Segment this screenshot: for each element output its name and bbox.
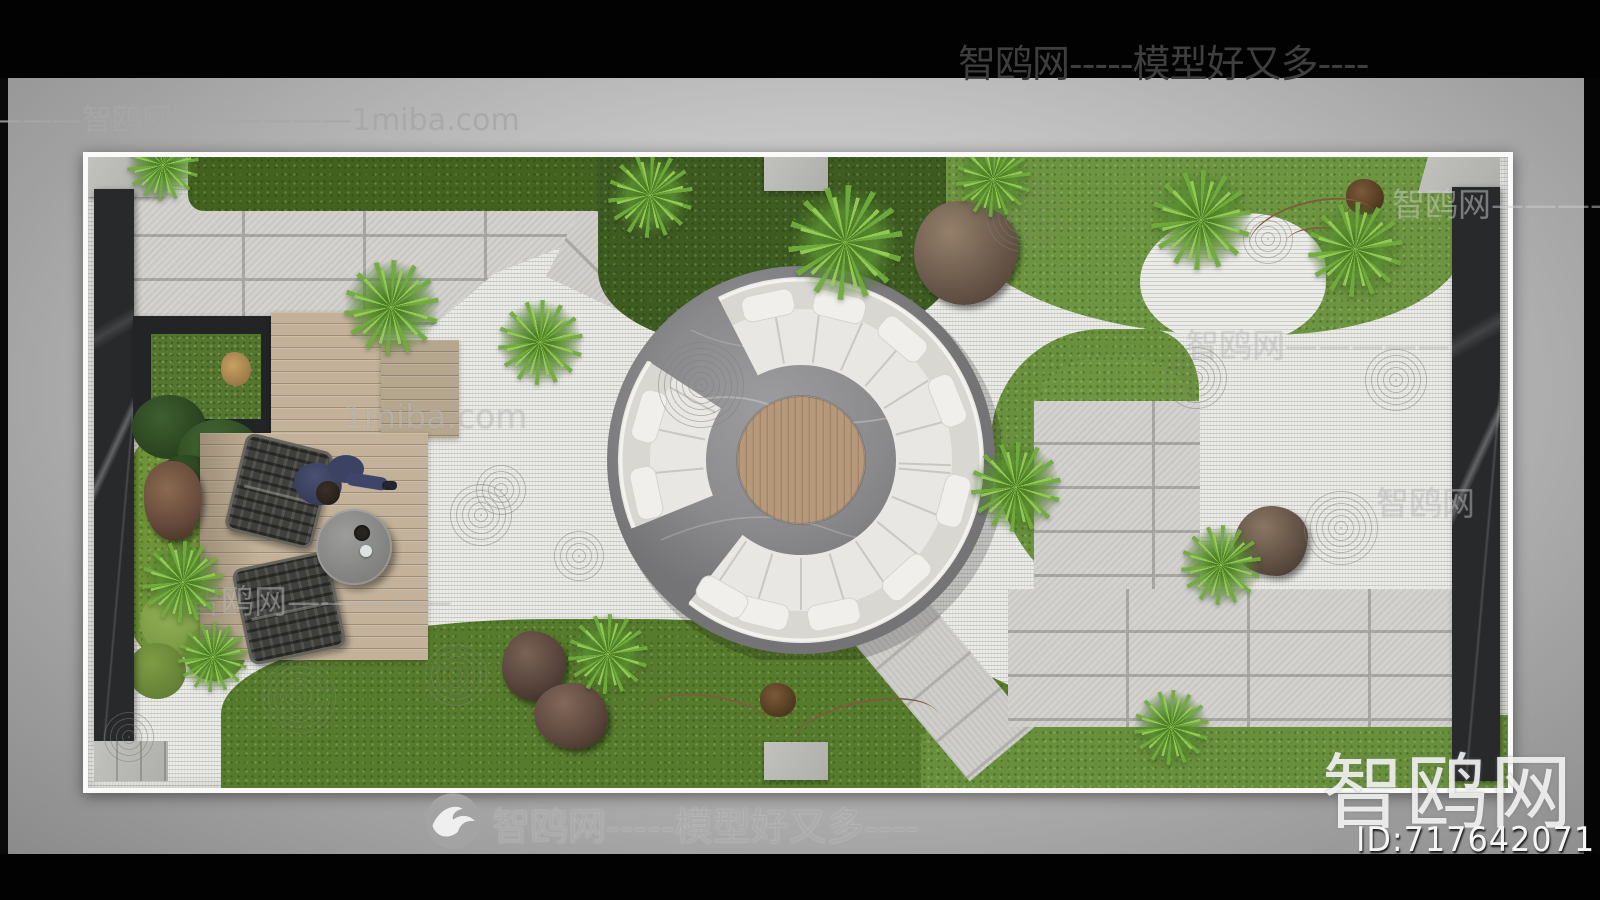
- paver-strip-bottom-right: [1008, 589, 1470, 727]
- cup: [360, 545, 372, 557]
- watermark-tile: 智鸥网: [1376, 477, 1475, 525]
- screenshot-canvas: 智鸥网-----模型好又多---- ————智鸥网——————1miba.com: [0, 0, 1600, 900]
- concrete-pier-top: [764, 157, 828, 191]
- circular-sofa-centerpiece: [601, 260, 1001, 660]
- fern-plant: [142, 541, 224, 623]
- gravel-swirl: [549, 526, 609, 586]
- fern-plant: [788, 185, 903, 300]
- seagull-logo-icon: [424, 792, 482, 850]
- gravel-swirl: [1162, 344, 1230, 412]
- bowl: [354, 525, 370, 541]
- gravel-swirl: [257, 655, 341, 739]
- gravel-swirl: [99, 707, 159, 767]
- fern-plant: [1308, 202, 1403, 297]
- watermark-tile: 智鸥网—————: [188, 575, 452, 623]
- gravel-swirl: [655, 339, 747, 431]
- left-edge-bar: [0, 0, 8, 900]
- fern-plant: [498, 300, 583, 385]
- garden: 1miba.com 智鸥网————— 智鸥网————— 智鸥网: [88, 157, 1508, 788]
- watermark-tile: 1miba.com: [343, 397, 527, 436]
- fern-plant: [344, 260, 439, 355]
- fern-plant: [1151, 170, 1251, 270]
- gravel-swirl: [1362, 346, 1430, 414]
- gravel-swirl: [447, 481, 515, 549]
- moss-mound: [128, 643, 186, 699]
- gravel-swirl: [420, 639, 492, 711]
- fern-plant: [1181, 525, 1261, 605]
- fern-plant: [971, 442, 1061, 532]
- fern-plant: [1134, 690, 1209, 765]
- gravel-swirl: [1303, 490, 1379, 566]
- top-black-bar: [0, 0, 1600, 78]
- fern-plant: [608, 157, 693, 238]
- rock: [144, 461, 202, 541]
- fern-plant: [568, 614, 648, 694]
- root-ball: [760, 683, 796, 717]
- bottom-black-bar: [0, 854, 1600, 900]
- fern-plant: [178, 622, 248, 692]
- round-side-table: [316, 509, 392, 585]
- right-edge-bar: [1584, 0, 1600, 900]
